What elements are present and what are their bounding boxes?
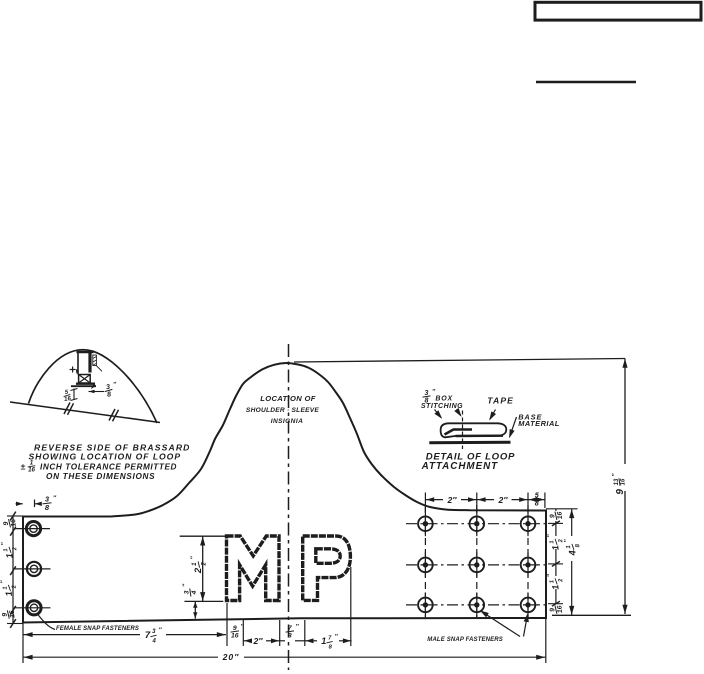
- svg-text:1: 1: [4, 591, 14, 597]
- svg-text:LOCATION OF: LOCATION OF: [260, 394, 316, 403]
- svg-text:SHOULDER · SLEEVE: SHOULDER · SLEEVE: [246, 407, 319, 414]
- svg-text:2″: 2″: [447, 495, 458, 505]
- svg-text:1: 1: [550, 584, 560, 590]
- svg-text:20″: 20″: [222, 652, 240, 662]
- svg-text:16: 16: [28, 467, 35, 474]
- svg-text:16: 16: [556, 605, 564, 613]
- svg-text:2: 2: [201, 561, 207, 566]
- svg-text:INCH TOLERANCE PERMITTED: INCH TOLERANCE PERMITTED: [40, 463, 177, 472]
- svg-text:INSIGNIA: INSIGNIA: [271, 418, 304, 425]
- svg-text:1: 1: [4, 553, 14, 559]
- svg-text:16: 16: [9, 610, 17, 618]
- svg-text:FEMALE SNAP FASTENERS: FEMALE SNAP FASTENERS: [56, 626, 139, 632]
- svg-text:8: 8: [535, 499, 539, 508]
- svg-text:16: 16: [10, 519, 18, 527]
- svg-text:9: 9: [615, 489, 626, 495]
- svg-text:ON THESE DIMENSIONS: ON THESE DIMENSIONS: [46, 472, 155, 481]
- svg-text:2″: 2″: [253, 636, 264, 646]
- svg-text:2: 2: [193, 567, 204, 574]
- svg-text:1: 1: [549, 540, 555, 544]
- svg-text:1: 1: [549, 580, 555, 584]
- svg-text:16: 16: [556, 511, 564, 519]
- svg-text:16: 16: [231, 632, 239, 639]
- svg-text:1: 1: [321, 636, 326, 646]
- svg-text:MATERIAL: MATERIAL: [518, 419, 560, 428]
- svg-text:ATTACHMENT: ATTACHMENT: [421, 461, 499, 472]
- svg-text:1: 1: [3, 548, 9, 552]
- svg-text:7: 7: [145, 630, 151, 641]
- svg-text:MALE SNAP FASTENERS: MALE SNAP FASTENERS: [427, 637, 503, 643]
- svg-text:±: ±: [21, 462, 26, 472]
- svg-text:1: 1: [3, 586, 9, 590]
- svg-text:SHOWING LOCATION OF LOOP: SHOWING LOCATION OF LOOP: [29, 451, 182, 461]
- svg-text:16: 16: [621, 478, 627, 485]
- svg-text:BOX: BOX: [435, 396, 453, 403]
- svg-text:TAPE: TAPE: [487, 396, 514, 406]
- svg-text:STITCHING: STITCHING: [421, 403, 463, 410]
- svg-text:2″: 2″: [498, 495, 509, 505]
- svg-text:1: 1: [550, 545, 560, 551]
- svg-text:4: 4: [152, 638, 157, 644]
- svg-text:8: 8: [288, 632, 292, 639]
- svg-text:4: 4: [191, 590, 198, 595]
